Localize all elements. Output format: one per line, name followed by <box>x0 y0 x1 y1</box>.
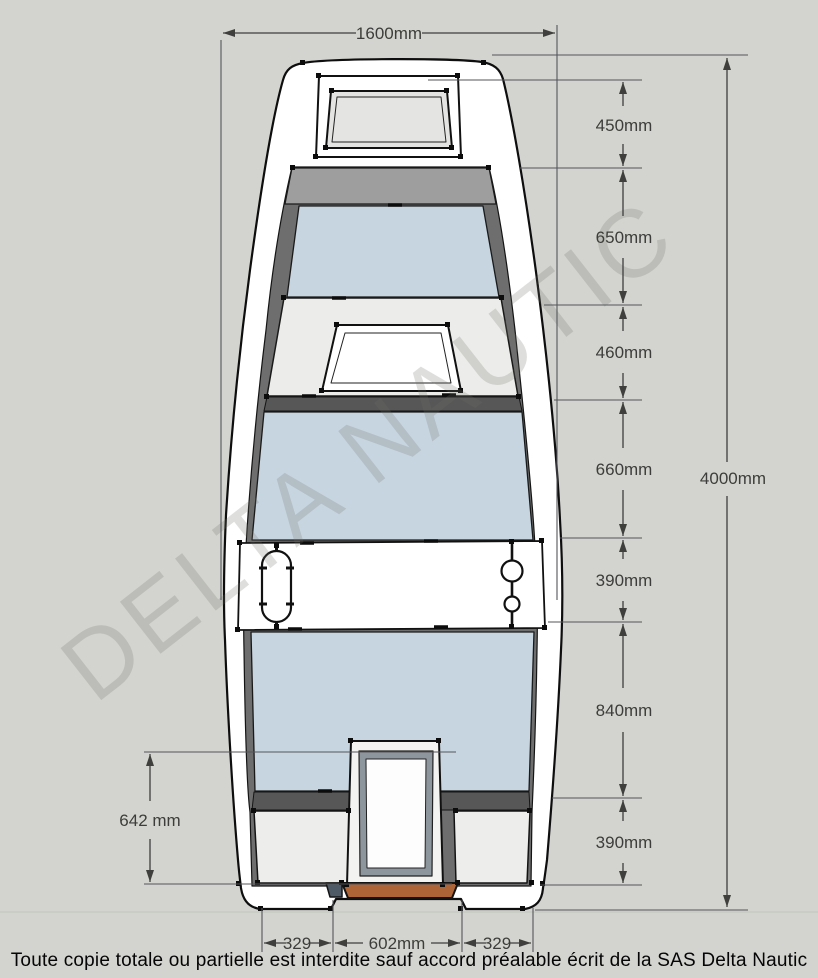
dim-390a-label: 390mm <box>596 571 653 590</box>
stern-well-opening <box>366 759 426 868</box>
dim-overall-length-label: 4000mm <box>700 469 766 488</box>
bow-hatch <box>326 91 452 148</box>
dim-390b-label: 390mm <box>596 833 653 852</box>
dim-660-label: 660mm <box>596 460 653 479</box>
stern-bench-right <box>454 811 530 883</box>
copyright-notice: Toute copie totale ou partielle est inte… <box>0 950 818 972</box>
stern-bench-left <box>254 811 350 883</box>
boat-technical-drawing: DELTA NAUTIC <box>0 0 818 978</box>
bow-bulkhead <box>285 168 496 204</box>
dim-650-label: 650mm <box>596 228 653 247</box>
dim-overall-width-label: 1600mm <box>356 24 422 43</box>
dim-450-label: 450mm <box>596 116 653 135</box>
dim-642-label: 642 mm <box>119 811 180 830</box>
dim-840-label: 840mm <box>596 701 653 720</box>
boat-plan-page: DELTA NAUTIC <box>0 0 818 978</box>
floor-panel-bow <box>287 206 499 297</box>
dim-460-label: 460mm <box>596 343 653 362</box>
